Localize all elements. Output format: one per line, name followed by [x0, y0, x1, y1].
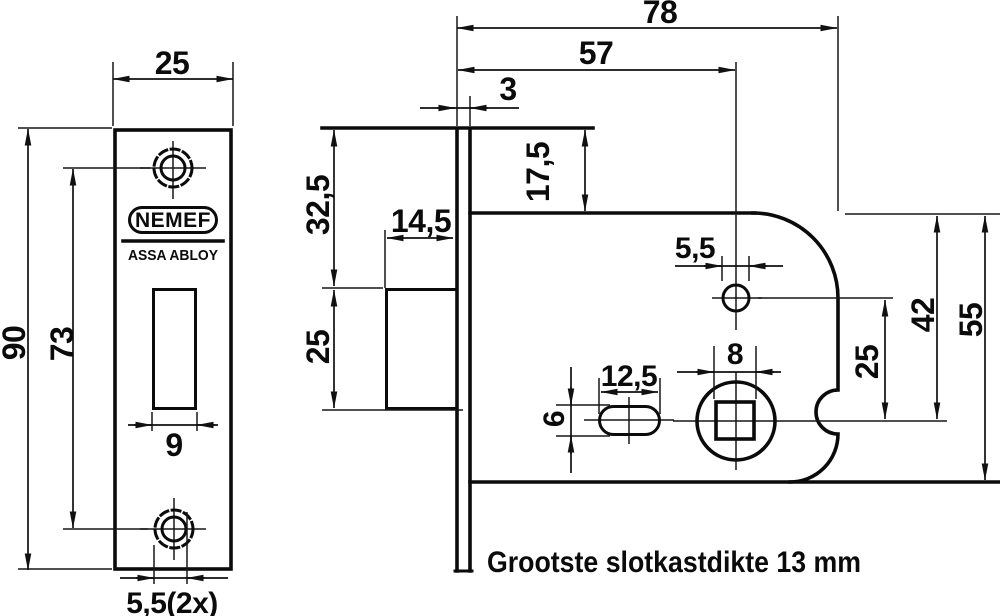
- dimension-value: 8: [727, 338, 743, 371]
- front-view: NEMEF ASSA ABLOY 25 90: [0, 45, 233, 616]
- dimension-value: 25: [300, 330, 336, 365]
- dim-plate-top-to-latch: 32,5: [300, 130, 383, 288]
- dimension-value: 73: [44, 327, 80, 362]
- dim-spindle-backset: 57: [458, 35, 735, 71]
- dim-pin-hole-diameter: 5,5: [675, 232, 783, 281]
- brand-logo: NEMEF ASSA ABLOY: [123, 208, 223, 265]
- dimension-value: 57: [579, 35, 614, 71]
- dim-spindle-square: 8: [677, 338, 781, 399]
- top-screw-hole: [140, 141, 206, 199]
- dim-plate-top-to-case: 17,5: [520, 130, 585, 211]
- dim-latch-cutout-width: 9: [128, 412, 218, 463]
- dim-case-height: 55: [953, 216, 989, 480]
- technical-drawing-page: NEMEF ASSA ABLOY 25 90: [0, 0, 1000, 616]
- dimension-value: 25: [155, 45, 190, 81]
- dimension-value: 6: [538, 411, 571, 427]
- dimension-value: 55: [953, 303, 989, 338]
- side-view: 78 57 3 17,5 32,5 25: [300, 0, 1000, 571]
- dimension-value: 9: [165, 427, 182, 463]
- group-name: ASSA ABLOY: [128, 247, 218, 264]
- latch-bolt: [387, 290, 457, 409]
- dimension-value: 42: [905, 298, 941, 333]
- dimension-value: 17,5: [520, 142, 556, 202]
- dimension-value: 25: [849, 345, 885, 380]
- dimension-value: 14,5: [391, 203, 451, 239]
- bottom-screw-hole: [140, 498, 206, 560]
- dimension-value: 32,5: [300, 175, 336, 235]
- dimension-value: 78: [643, 0, 678, 30]
- dimension-value: 3: [499, 71, 516, 107]
- brand-name: NEMEF: [135, 209, 211, 232]
- lock-dimension-drawing: NEMEF ASSA ABLOY 25 90: [0, 0, 1000, 616]
- dim-latch-height: 25: [300, 290, 463, 410]
- case-right-edge: [753, 213, 838, 482]
- dim-pin-to-spindle: 25: [849, 300, 885, 419]
- drawing-note: Grootste slotkastdikte 13 mm: [487, 546, 861, 579]
- dimension-value: 5,5(2x): [126, 587, 218, 616]
- latch-cutout: [154, 290, 196, 409]
- dim-faceplate-thickness: 3: [420, 71, 519, 126]
- dimension-value: 12,5: [601, 360, 657, 393]
- pin-hole: [712, 62, 893, 330]
- dimension-value: 5,5: [675, 232, 715, 265]
- dim-latch-depth: 14,5: [385, 203, 453, 288]
- dimension-value: 90: [0, 326, 32, 361]
- dim-plate-width: 25: [113, 45, 233, 126]
